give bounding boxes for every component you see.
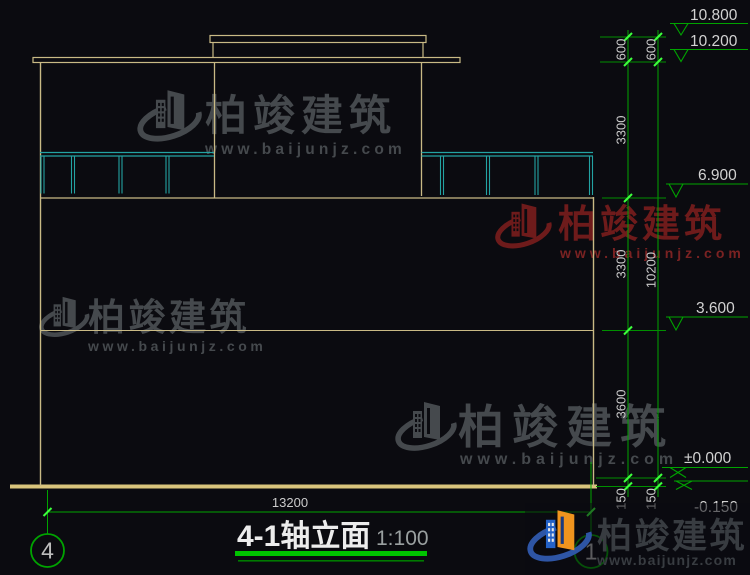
watermark-brand: 柏竣建筑 bbox=[88, 296, 250, 338]
level-marker-icon bbox=[676, 481, 692, 490]
baijunjz-logo-icon bbox=[394, 402, 458, 454]
title-underline bbox=[235, 551, 427, 556]
watermark-brand: 柏竣建筑 bbox=[458, 401, 674, 453]
dim-text-width: 13200 bbox=[272, 495, 308, 510]
dim-text: 3300 bbox=[614, 250, 629, 279]
watermark-top-left: 柏竣建筑 www.baijunjz.com bbox=[136, 90, 406, 158]
dim-text: 3600 bbox=[614, 390, 629, 419]
level-text: 10.200 bbox=[690, 33, 738, 50]
level-marker-icon bbox=[670, 468, 686, 478]
level-marker-icon bbox=[674, 50, 688, 62]
dim-text: 600 bbox=[614, 39, 629, 61]
drawing-scale: 1:100 bbox=[376, 527, 429, 550]
baijunjz-logo-icon bbox=[136, 90, 203, 145]
level-marker-icon bbox=[669, 184, 683, 197]
dim-text: 10200 bbox=[644, 252, 659, 288]
watermark-bottom-right: 柏竣建筑 www.baijunjz.com bbox=[525, 503, 750, 575]
roof-slab bbox=[33, 58, 460, 63]
level-text: 3.600 bbox=[696, 300, 735, 317]
railing-left bbox=[40, 153, 214, 194]
dim-text: 600 bbox=[644, 39, 659, 61]
level-6900: 6.900 bbox=[666, 167, 748, 197]
watermark-bottom-middle: 柏竣建筑 www.baijunjz.com bbox=[394, 401, 678, 468]
level-marker-icon bbox=[674, 24, 688, 36]
dim-text: 3300 bbox=[614, 116, 629, 145]
level-text: 10.800 bbox=[690, 7, 738, 24]
level-10200: 10.200 bbox=[670, 33, 748, 62]
baijunjz-logo-icon bbox=[38, 297, 90, 340]
parapet-slab bbox=[210, 36, 426, 43]
cad-elevation-screenshot: 柏竣建筑 www.baijunjz.com 柏竣建筑 www.baijunjz.… bbox=[0, 0, 750, 575]
level-3600: 3.600 bbox=[666, 300, 748, 330]
railing-right bbox=[422, 153, 594, 196]
title-block: 4-1轴立面 1:100 bbox=[235, 519, 429, 562]
watermark-url: www.baijunjz.com bbox=[459, 451, 678, 468]
axis-number-left: 4 bbox=[41, 538, 54, 564]
baijunjz-logo-icon bbox=[494, 204, 553, 252]
level-text: 6.900 bbox=[698, 167, 737, 184]
title-underline-thin bbox=[238, 560, 424, 562]
level-marker-icon bbox=[669, 317, 683, 330]
level-text: ±0.000 bbox=[684, 450, 732, 467]
watermark-url: www.baijunjz.com bbox=[204, 141, 406, 158]
roof-terrace-railings bbox=[40, 153, 593, 196]
level-markers: 10.800 10.200 6.900 3.600 ±0.000 bbox=[662, 7, 748, 516]
logo-url-text: www.baijunjz.com bbox=[596, 552, 737, 568]
ground-line bbox=[10, 485, 597, 489]
logo-brand-text: 柏竣建筑 bbox=[597, 516, 747, 556]
elevation-drawing-canvas: 柏竣建筑 www.baijunjz.com 柏竣建筑 www.baijunjz.… bbox=[0, 0, 750, 575]
level-10800: 10.800 bbox=[670, 7, 748, 35]
watermark-brand: 柏竣建筑 bbox=[558, 204, 726, 246]
watermark-brand: 柏竣建筑 bbox=[205, 92, 397, 139]
watermark-mid-left: 柏竣建筑 www.baijunjz.com bbox=[38, 296, 266, 354]
drawing-title: 4-1轴立面 bbox=[237, 519, 370, 553]
watermark-url: www.baijunjz.com bbox=[87, 338, 266, 354]
